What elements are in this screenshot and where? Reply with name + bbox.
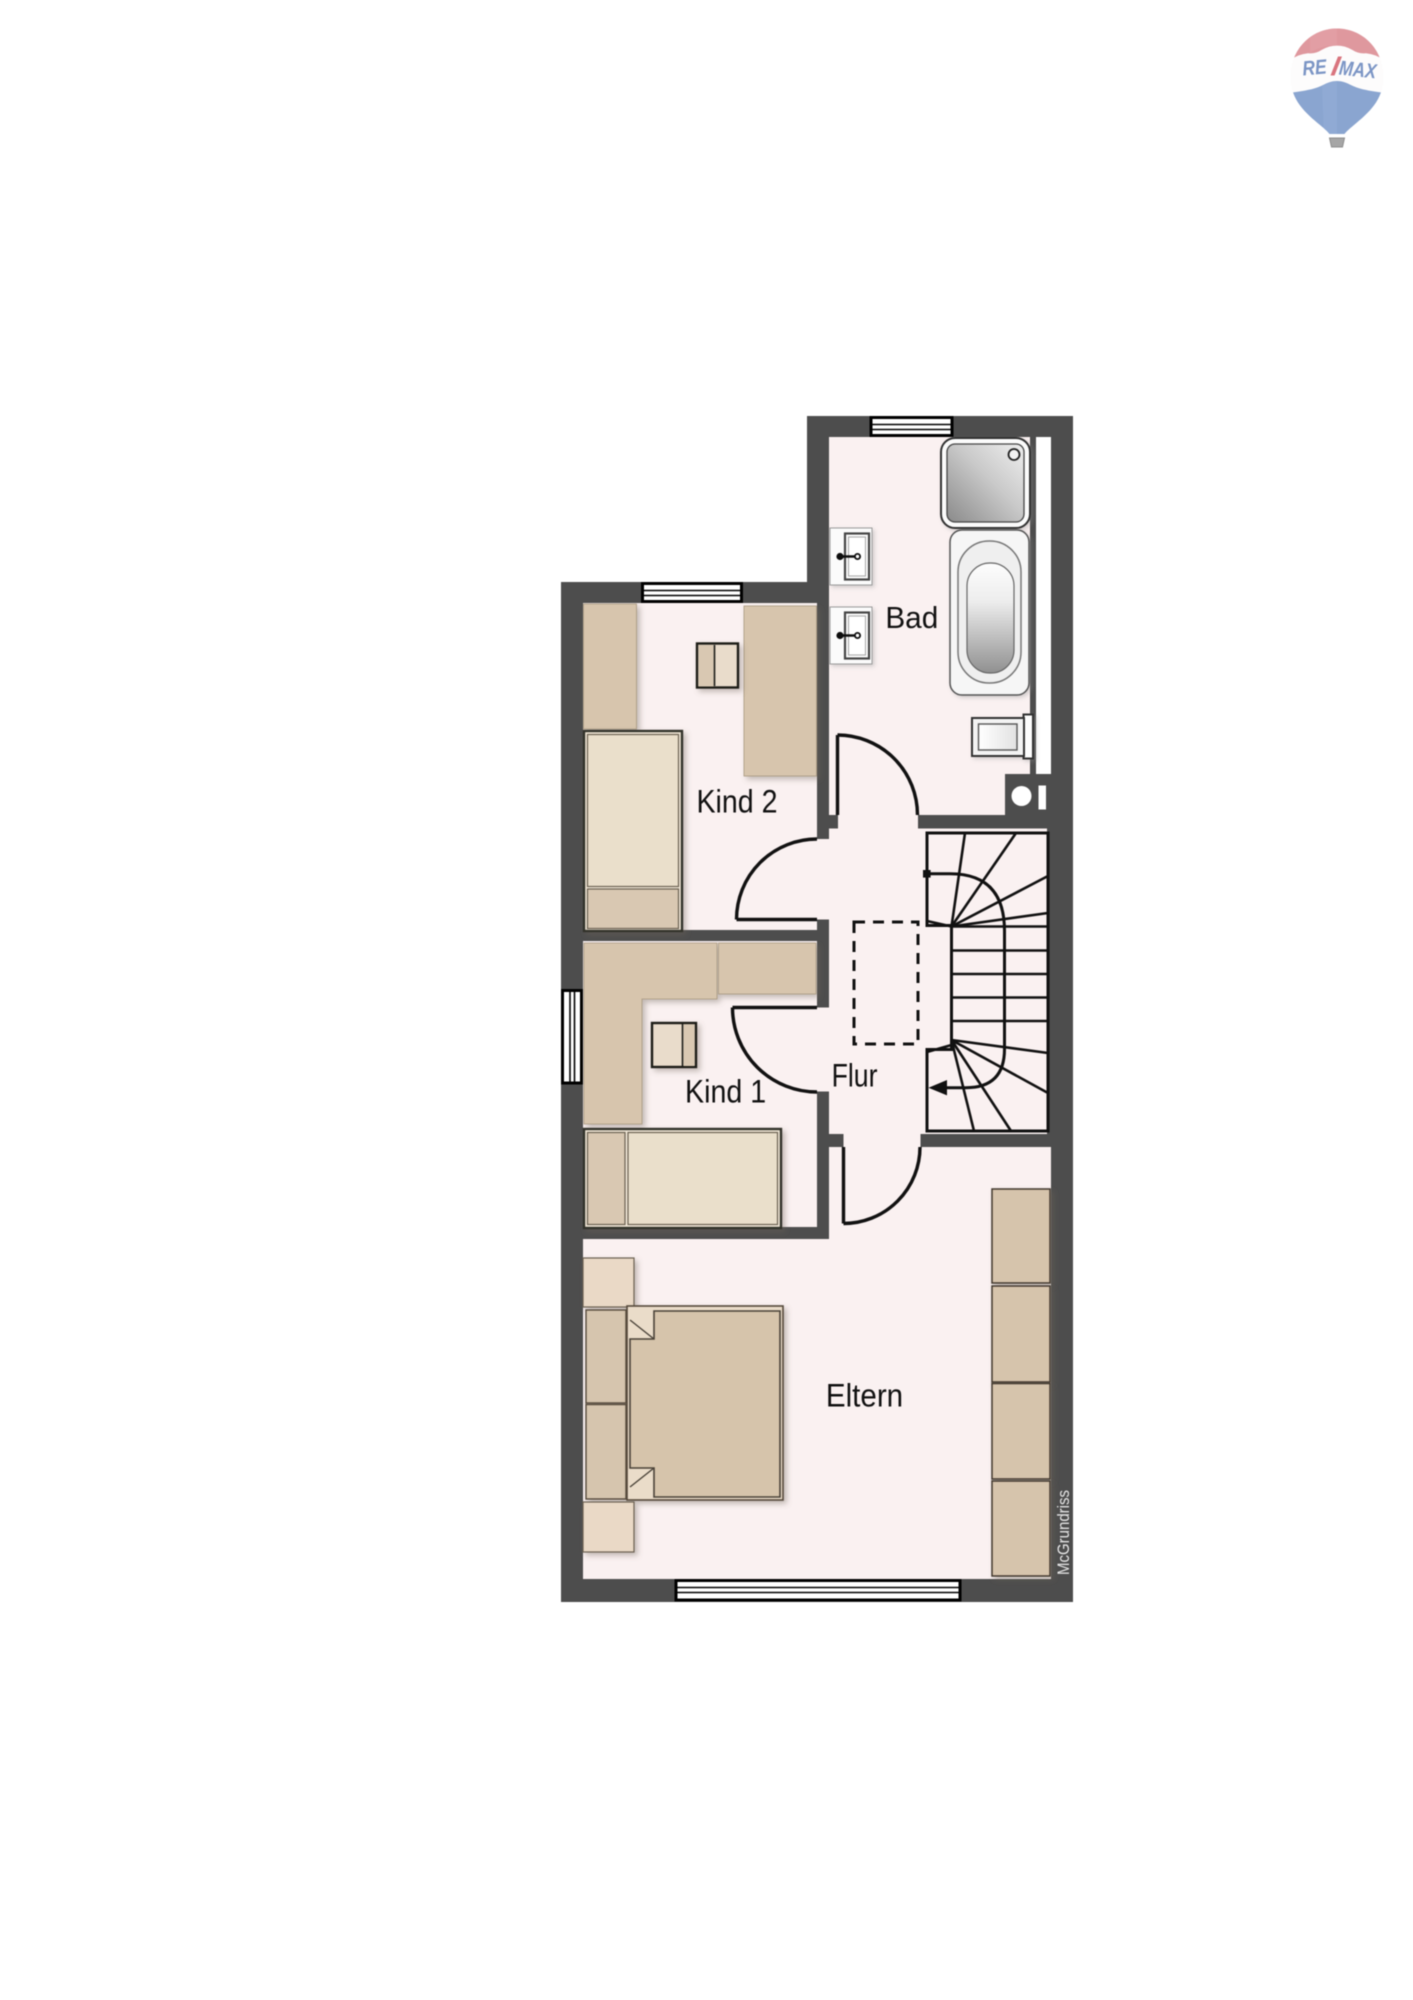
svg-text:Flur: Flur — [832, 1058, 878, 1094]
svg-text:Kind 1: Kind 1 — [685, 1074, 766, 1110]
svg-text:Bad: Bad — [885, 600, 938, 635]
svg-text:MAX: MAX — [1338, 56, 1379, 83]
svg-text:RE: RE — [1301, 56, 1328, 81]
svg-text:McGrundriss: McGrundriss — [1054, 1490, 1073, 1575]
svg-text:Kind 2: Kind 2 — [696, 784, 777, 820]
svg-text:Eltern: Eltern — [826, 1377, 903, 1414]
